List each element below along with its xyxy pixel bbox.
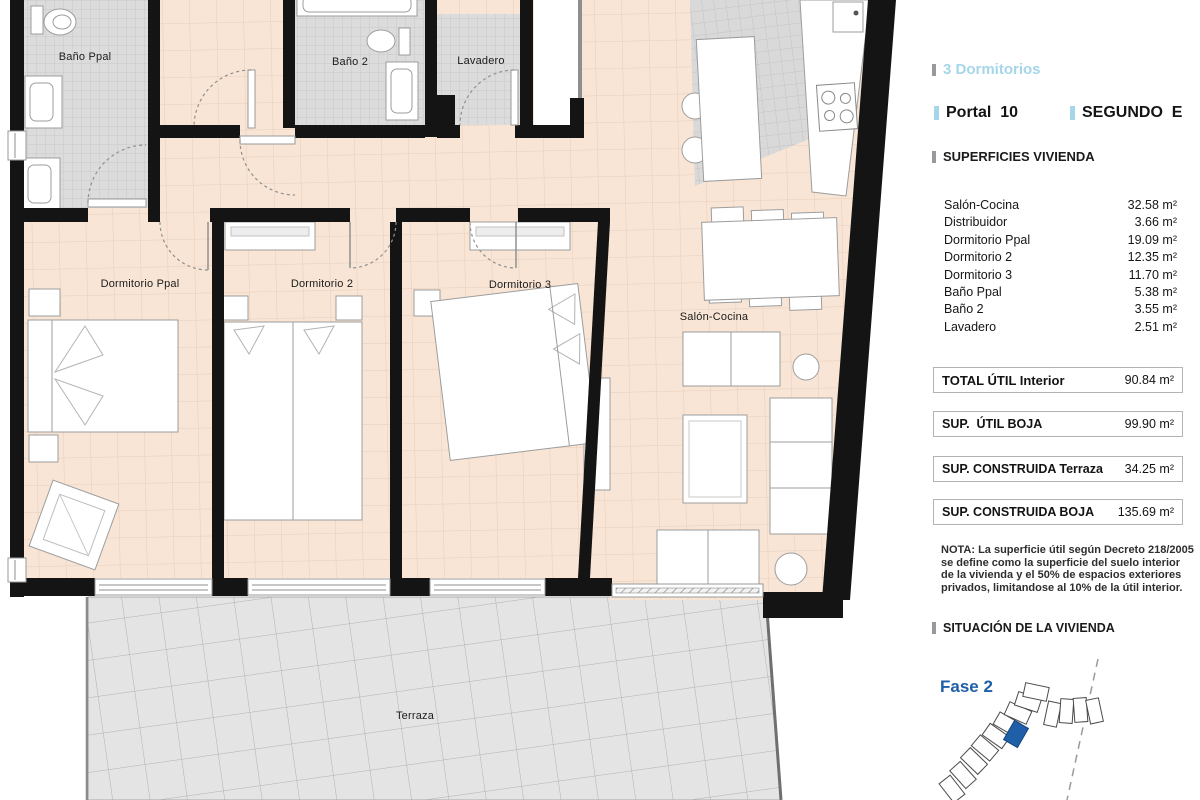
- surface-list: Salón-Cocina32.58 m² Distribuidor3.66 m²…: [944, 197, 1177, 336]
- terrace-area: [87, 597, 781, 800]
- surface-row: Baño Ppal5.38 m²: [944, 284, 1177, 301]
- surface-row: Lavadero2.51 m²: [944, 319, 1177, 336]
- total-label: TOTAL ÚTIL Interior: [934, 373, 1065, 388]
- surface-room-area: 19.09 m²: [1128, 232, 1177, 249]
- surface-room-name: Dormitorio Ppal: [944, 232, 1030, 249]
- sup-construida-boja-box: SUP. CONSTRUIDA BOJA 135.69 m²: [933, 499, 1183, 525]
- sup-construida-terraza-box: SUP. CONSTRUIDA Terraza 34.25 m²: [933, 456, 1183, 482]
- surface-room-name: Dormitorio 2: [944, 249, 1012, 266]
- site-map-svg: [930, 652, 1200, 800]
- total-value: 90.84 m²: [1125, 373, 1182, 387]
- accent-bar-icon: [932, 64, 936, 76]
- surface-room-area: 3.66 m²: [1135, 214, 1177, 231]
- floor-label: SEGUNDO E: [1082, 104, 1182, 122]
- surface-room-name: Baño Ppal: [944, 284, 1002, 301]
- room-label-dorm-ppal: Dormitorio Ppal: [101, 278, 180, 290]
- room-label-bano-ppal: Baño Ppal: [59, 51, 112, 63]
- total-util-interior-box: TOTAL ÚTIL Interior 90.84 m²: [933, 367, 1183, 393]
- surface-room-area: 11.70 m²: [1129, 267, 1177, 284]
- room-label-salon: Salón-Cocina: [680, 311, 748, 323]
- room-label-dorm-3: Dormitorio 3: [489, 279, 551, 291]
- legal-note: NOTA: La superficie útil según Decreto 2…: [941, 544, 1195, 595]
- total-value: 135.69 m²: [1118, 505, 1182, 519]
- surface-room-area: 12.35 m²: [1128, 249, 1177, 266]
- surface-room-name: Distribuidor: [944, 214, 1007, 231]
- room-label-lavadero: Lavadero: [457, 55, 504, 67]
- surface-row: Dormitorio 212.35 m²: [944, 249, 1177, 266]
- portal-label: Portal 10: [946, 104, 1018, 122]
- surfaces-title: SUPERFICIES VIVIENDA: [932, 149, 1095, 164]
- floor-header: SEGUNDO E: [1070, 104, 1182, 122]
- surface-row: Dormitorio Ppal19.09 m²: [944, 232, 1177, 249]
- surface-room-area: 2.51 m²: [1135, 319, 1177, 336]
- portal-header: Portal 10: [934, 104, 1018, 122]
- surface-room-area: 5.38 m²: [1135, 284, 1177, 301]
- surface-row: Dormitorio 311.70 m²: [944, 267, 1177, 284]
- surface-room-area: 3.55 m²: [1135, 301, 1177, 318]
- site-building-band-large: [939, 683, 1049, 800]
- accent-bar-icon: [932, 151, 936, 163]
- surface-room-name: Baño 2: [944, 301, 984, 318]
- surfaces-title-label: SUPERFICIES VIVIENDA: [943, 149, 1095, 164]
- surface-row: Distribuidor3.66 m²: [944, 214, 1177, 231]
- surface-room-area: 32.58 m²: [1128, 197, 1177, 214]
- total-value: 99.90 m²: [1125, 417, 1182, 431]
- room-label-bano-2: Baño 2: [332, 56, 368, 68]
- accent-bar-icon: [934, 106, 939, 120]
- surface-room-name: Dormitorio 3: [944, 267, 1012, 284]
- total-label: SUP. CONSTRUIDA BOJA: [934, 505, 1094, 519]
- accent-bar-icon: [932, 622, 936, 634]
- dining-set: [701, 204, 840, 314]
- unit-type-header: 3 Dormitorios: [932, 61, 1041, 78]
- site-building-band-small: [1044, 698, 1104, 728]
- floor-plan-svg: [0, 0, 920, 800]
- surface-row: Baño 23.55 m²: [944, 301, 1177, 318]
- situation-title: SITUACIÓN DE LA VIVIENDA: [932, 621, 1115, 635]
- surface-room-name: Salón-Cocina: [944, 197, 1019, 214]
- accent-bar-icon: [1070, 106, 1075, 120]
- situation-title-label: SITUACIÓN DE LA VIVIENDA: [943, 621, 1115, 635]
- total-value: 34.25 m²: [1125, 462, 1182, 476]
- surface-row: Salón-Cocina32.58 m²: [944, 197, 1177, 214]
- sup-util-boja-box: SUP. ÚTIL BOJA 99.90 m²: [933, 411, 1183, 437]
- room-label-dorm-2: Dormitorio 2: [291, 278, 353, 290]
- total-label: SUP. ÚTIL BOJA: [934, 417, 1042, 431]
- surface-room-name: Lavadero: [944, 319, 996, 336]
- room-label-terraza: Terraza: [396, 710, 434, 722]
- plan-sheet: Baño Ppal Baño 2 Lavadero Dormitorio Ppa…: [0, 0, 1200, 800]
- unit-type-label: 3 Dormitorios: [943, 61, 1041, 78]
- total-label: SUP. CONSTRUIDA Terraza: [934, 462, 1103, 476]
